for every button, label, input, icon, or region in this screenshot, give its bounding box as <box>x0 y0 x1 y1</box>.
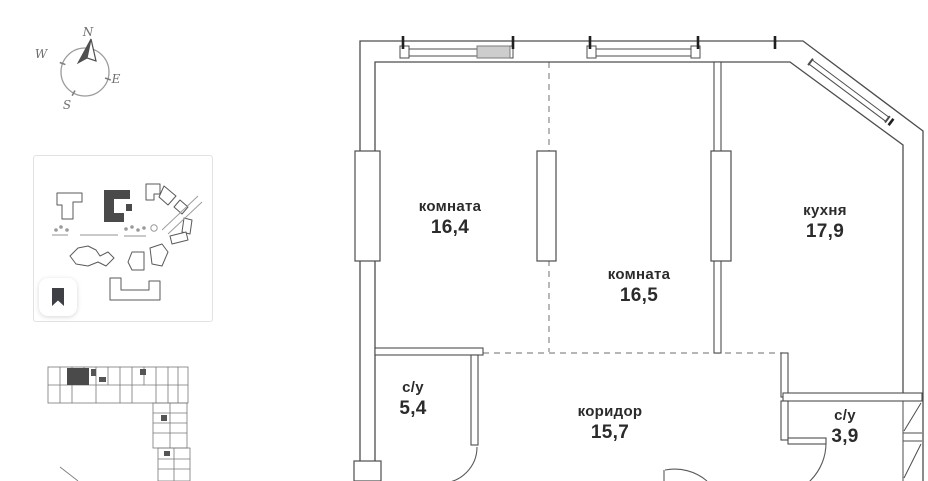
floor-plan <box>0 0 928 481</box>
ventilation-shaft <box>903 401 922 481</box>
structural-piers <box>354 151 731 481</box>
interior-walls <box>375 62 922 445</box>
room-label-komnata-2: комната 16,5 <box>608 266 671 307</box>
dashed-partition-lines <box>483 62 783 353</box>
room-label-kitchen: кухня 17,9 <box>803 202 847 243</box>
door-swings <box>441 443 826 481</box>
room-label-komnata-1: комната 16,4 <box>419 198 482 239</box>
windows <box>400 46 890 123</box>
room-label-bathroom-1: с/у 5,4 <box>399 379 426 420</box>
room-label-corridor: коридор 15,7 <box>578 403 643 444</box>
room-label-bathroom-2: с/у 3,9 <box>831 407 858 448</box>
